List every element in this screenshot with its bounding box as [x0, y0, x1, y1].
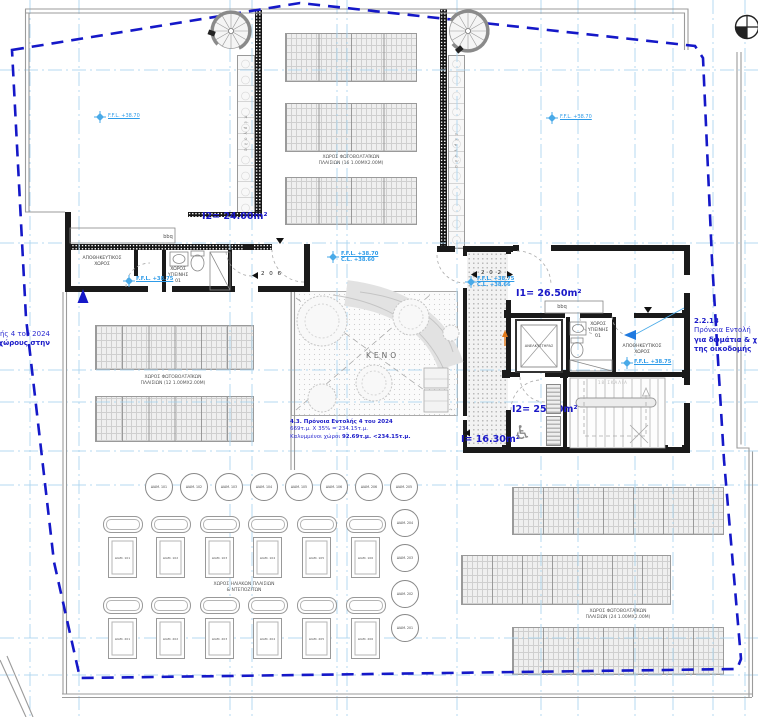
- solar-tank: [151, 516, 191, 533]
- solar-tank: [297, 597, 337, 614]
- ffl-marker-garden: F.F.L. +38.70C.L. +38.60: [341, 251, 378, 263]
- bbq-label-left: bbq: [158, 234, 178, 241]
- benchmark-symbol: [736, 16, 758, 39]
- ffl-marker-storage-right: F.F.L. +38.75: [634, 359, 671, 365]
- solar-heater-label: ΧΩΡΟΣ ΗΛΙΑΚΩΝ ΠΛΑΙΣΙΩΝ & ΝΤΕΠΟΖΙΤΩΝ: [200, 582, 288, 594]
- vent-circle: ΔΙΑΜ. 105: [285, 473, 313, 501]
- pv-array-br-2: [461, 555, 671, 605]
- solar-panel: ΔΙΑΜ. 102: [156, 537, 185, 578]
- pv-array-br-1: [512, 487, 724, 535]
- area-label-room-i2: I2= 25.80m²: [512, 404, 578, 415]
- pv-array-left-1: [95, 325, 254, 370]
- solar-panel: ΔΙΑΜ. 203: [205, 618, 234, 659]
- solar-panel: ΔΙΑΜ. 104: [253, 537, 282, 578]
- solar-tank: [200, 597, 240, 614]
- area-label-room-i1: I1= 26.50m²: [516, 288, 582, 299]
- spiral-stair-left: [204, 4, 258, 58]
- vent-circle: ΔΙΑΜ. 205: [390, 473, 418, 501]
- ffl-marker-top-left: F.F.L. +38.70: [108, 113, 140, 119]
- bbq-label-right: bbq: [552, 304, 572, 311]
- pv-label-left: ΧΩΡΟΣ ΦΩΤΟΒΟΛΤΑΪΚΩΝ ΠΛΑΙΣΙΩΝ (12 1.00ΜΧ2…: [128, 375, 218, 387]
- vent-circle: ΔΙΑΜ. 201: [391, 614, 419, 642]
- solar-panel: ΔΙΑΜ. 105: [302, 537, 331, 578]
- pv-array-top-3: [285, 177, 417, 225]
- void-label: ΚΕΝΟ: [366, 351, 399, 360]
- solar-panel: ΔΙΑΜ. 103: [205, 537, 234, 578]
- solar-panel: ΔΙΑΜ. 202: [156, 618, 185, 659]
- door-marker-down-2: [644, 307, 652, 313]
- room-label-storage-left: ΑΠΟΘΗΚΕΥΤΙΚΟΣ ΧΩΡΟΣ: [74, 256, 130, 268]
- stairs-count-note: 18 ΣΚΑΛΙΑ: [598, 380, 628, 385]
- pv-array-br-3: [512, 627, 724, 675]
- pergola-strip-right: πέργολα: [448, 55, 465, 249]
- left-edge-note: ής 4 του 2024 χώρους στην: [0, 330, 50, 349]
- pv-array-top-1: [285, 33, 417, 82]
- solar-tank: [297, 516, 337, 533]
- solar-panel: ΔΙΑΜ. 205: [302, 618, 331, 659]
- area-label-landing: I= 16.30m²: [461, 434, 520, 445]
- ffl-marker-top-right: F.F.L. +38.70: [560, 114, 592, 120]
- vent-circle: ΔΙΑΜ. 103: [215, 473, 243, 501]
- vent-circle: ΔΙΑΜ. 206: [355, 473, 383, 501]
- solar-tank: [248, 597, 288, 614]
- door-marker-down: [276, 238, 284, 244]
- pv-array-left-2: [95, 396, 254, 442]
- vent-circle: ΔΙΑΜ. 106: [320, 473, 348, 501]
- solar-panel: ΔΙΑΜ. 201: [108, 618, 137, 659]
- solar-panel: ΔΙΑΜ. 204: [253, 618, 282, 659]
- entrance-arrow: [78, 289, 89, 303]
- solar-tank: [103, 516, 143, 533]
- solar-tank: [248, 516, 288, 533]
- room-label-elevator: ΑΝΕΛΚΥΣΤΗΡΑΣ: [517, 344, 561, 349]
- cabinet: [546, 416, 561, 446]
- order-note-2218: 2.2.18 Πρόνοια Εντολή για δωμάτια & χ τη…: [694, 317, 758, 355]
- vent-circle: ΔΙΑΜ. 204: [391, 509, 419, 537]
- wall-pergola-left: [255, 10, 262, 213]
- arrow-left-206: [252, 272, 258, 279]
- door-label-206: 2 0 6: [261, 271, 283, 277]
- provision-note-43: 4.3. Πρόνοια Εντολής 4 του 2024 669τ.μ. …: [290, 419, 420, 441]
- wall-pergola-right: [440, 9, 447, 247]
- wall-left-block-mid: [65, 244, 272, 250]
- solar-panel: ΔΙΑΜ. 101: [108, 537, 137, 578]
- roof-floor-plan: πέργολα πέργολα: [0, 0, 758, 717]
- room-label-wc-left: ΧΩΡΟΣ ΥΓΙΕΙΝΗΣ 01: [164, 267, 192, 285]
- pv-label-bottom-right: ΧΩΡΟΣ ΦΩΤΟΒΟΛΤΑΪΚΩΝ ΠΛΑΙΣΙΩΝ (24 1.00ΜΧ2…: [572, 609, 664, 621]
- vent-circle: ΔΙΑΜ. 101: [145, 473, 173, 501]
- pergola-right-label: πέργολα: [454, 133, 459, 171]
- area-label-roof-terrace: I2= 24.00m²: [202, 211, 268, 222]
- solar-panel: ΔΙΑΜ. 106: [351, 537, 380, 578]
- solar-tank: [346, 516, 386, 533]
- cabinet: [546, 384, 561, 414]
- vent-circle: ΔΙΑΜ. 102: [180, 473, 208, 501]
- ffl-marker-corridor: F.F.L. +38.75C.L. +38.66: [477, 276, 514, 288]
- pergola-left-label: πέργολα: [244, 116, 249, 154]
- pv-array-top-2: [285, 103, 417, 152]
- door-label-202: 2 0 2: [481, 270, 503, 276]
- room-label-storage-right: ΑΠΟΘΗΚΕΥΤΙΚΟΣ ΧΩΡΟΣ: [616, 344, 668, 356]
- pv-label-top: ΧΩΡΟΣ ΦΩΤΟΒΟΛΤΑΪΚΩΝ ΠΛΑΙΣΙΩΝ (16 1.00ΜΧ2…: [308, 155, 394, 167]
- vent-circle: ΔΙΑΜ. 202: [391, 580, 419, 608]
- solar-tank: [151, 597, 191, 614]
- vent-circle: ΔΙΑΜ. 203: [391, 544, 419, 572]
- pergola-strip-left: πέργολα: [237, 55, 255, 215]
- staircase: [570, 378, 665, 448]
- wheelchair-icon: ♿: [514, 424, 531, 443]
- solar-panel: ΔΙΑΜ. 206: [351, 618, 380, 659]
- spiral-stair-right: [441, 4, 496, 59]
- solar-tank: [200, 516, 240, 533]
- solar-tank: [103, 597, 143, 614]
- vent-circle: ΔΙΑΜ. 104: [250, 473, 278, 501]
- solar-tank: [346, 597, 386, 614]
- room-label-wc-right: ΧΩΡΟΣ ΥΓΙΕΙΝΗΣ 01: [584, 322, 612, 340]
- leader-arrow-blue: [624, 308, 684, 340]
